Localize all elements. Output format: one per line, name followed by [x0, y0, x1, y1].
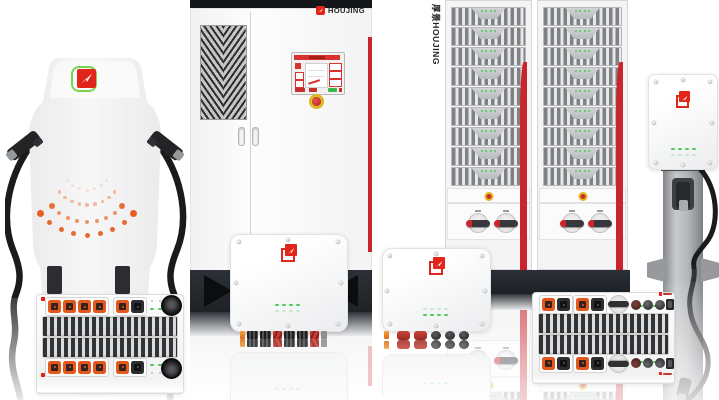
red-terminal: [310, 331, 319, 339]
indicator-dot: [78, 187, 81, 190]
status-led: [430, 314, 434, 317]
wall-box-status-leds: [423, 303, 451, 321]
tower-red-stripe: [616, 62, 623, 270]
tower-estop-panel: [447, 188, 530, 203]
rack-power-module: [451, 27, 526, 46]
status-led: [692, 154, 696, 157]
module-rotary-knob: [609, 354, 628, 373]
round-connector-black: [643, 358, 653, 368]
logo-arrow-icon: [316, 6, 325, 15]
screw-icon: [336, 240, 340, 244]
screw-icon: [237, 322, 241, 326]
screw-icon: [234, 281, 238, 285]
screw-icon: [385, 289, 389, 293]
product-showcase: HOUJING: [0, 0, 719, 400]
screw-icon: [237, 240, 241, 244]
indicator-dot: [85, 220, 89, 224]
status-led: [48, 361, 61, 374]
display-button-green: [328, 88, 337, 92]
indicator-dot: [78, 202, 82, 206]
orange-terminal: [384, 341, 389, 349]
charger-status-leds-dim: [671, 143, 699, 161]
indicator-dot: [71, 184, 74, 187]
orange-terminal: [240, 340, 245, 348]
emergency-stop-button: [309, 94, 324, 109]
screw-icon: [388, 322, 392, 326]
rack-power-module: [543, 67, 622, 86]
module-dc-connectors: [45, 358, 109, 377]
charging-gun-tip: [679, 200, 688, 211]
cabinet-door-handle-right: [252, 127, 259, 146]
display-menu-box: [295, 80, 304, 88]
wall-mounted-charger-box: [230, 234, 346, 400]
pillar-brand-logo: [71, 62, 103, 96]
orange-connector: [576, 298, 589, 311]
display-menu-box: [295, 72, 304, 80]
status-led: [685, 154, 689, 157]
module-vent-grille: [42, 337, 178, 358]
tower-red-stripe: [520, 62, 527, 270]
rack-power-module: [451, 87, 526, 106]
module-dc-connectors: [45, 297, 109, 316]
dark-terminal: [247, 331, 258, 339]
black-round-connector: [431, 341, 441, 350]
status-led: [289, 310, 293, 313]
indicator-dot: [107, 196, 111, 200]
wall-mounted-charger-box: [382, 248, 489, 400]
rack-module-leds: [472, 28, 506, 32]
display-button-red: [295, 88, 305, 92]
indicator-dot: [58, 190, 62, 194]
wall-box-connector-strip: [384, 330, 487, 340]
status-led: [150, 299, 154, 311]
module-io-connectors: [573, 295, 607, 314]
rack-module-leds: [472, 168, 506, 172]
orange-connector: [542, 298, 555, 311]
power-module-face: [533, 334, 674, 375]
orange-connector-set: [48, 300, 106, 313]
display-button-red: [339, 88, 342, 92]
orange-connector: [542, 357, 555, 370]
power-module-reflection: [37, 337, 183, 379]
tower-estop-panel: [539, 188, 626, 203]
rack-power-module: [451, 147, 526, 166]
status-led: [671, 154, 675, 157]
rack-module-leds: [566, 108, 600, 112]
wall-box-connector-strip: [384, 340, 487, 350]
wall-box-reflection: [382, 354, 491, 400]
indicator-dot: [71, 231, 76, 236]
black-round-connector: [459, 341, 469, 350]
cabinet-display: [291, 52, 345, 95]
logo-red-square-icon: [77, 69, 96, 88]
rack-power-module: [543, 87, 622, 106]
rack-power-module: [543, 127, 622, 146]
rack-power-module: [451, 67, 526, 86]
logo-arrow-icon: [679, 93, 690, 104]
red-round-connector: [397, 331, 410, 340]
rack-module-leds: [566, 128, 600, 132]
rack-power-module: [543, 7, 622, 26]
power-module-face: [533, 293, 674, 334]
black-connector: [591, 298, 604, 311]
wall-box-connector-strip: [240, 330, 336, 339]
indicator-dot: [37, 210, 44, 217]
wall-box-logo: [281, 244, 298, 261]
module-vent-grille: [538, 334, 669, 355]
black-round-connector: [445, 341, 455, 350]
display-side-box: [329, 63, 342, 71]
indicator-dot: [63, 196, 67, 200]
red-terminal: [273, 331, 282, 339]
dark-terminal: [284, 340, 295, 348]
status-led: [93, 300, 106, 313]
charger-cable: [694, 170, 716, 267]
rack-power-module: [543, 27, 622, 46]
module-io-connectors: [573, 354, 607, 373]
rack-power-module: [451, 127, 526, 146]
screw-icon: [708, 80, 712, 84]
cabinet-door-handle-left: [238, 127, 245, 146]
display-side-box: [329, 79, 342, 87]
rack-power-module: [451, 7, 526, 26]
module-rotary-knob: [609, 295, 628, 314]
rack-module-leds: [566, 48, 600, 52]
screw-icon: [336, 322, 340, 326]
indicator-dot: [86, 189, 89, 192]
round-connector-black: [655, 358, 665, 368]
rack-power-module: [543, 167, 622, 186]
indicator-dot: [59, 227, 64, 232]
connector-strip-reflection: [240, 339, 336, 348]
wall-box-body: [230, 234, 348, 332]
rack-vertical-brand-label: 厚景HOUJING: [430, 4, 442, 65]
indicator-dot: [85, 233, 90, 238]
indicator-dot: [93, 187, 96, 190]
screw-icon: [652, 121, 656, 125]
orange-terminal: [384, 331, 389, 339]
dc-breaker-switch: [496, 213, 516, 233]
rack-power-module: [451, 167, 526, 186]
cabinet-red-stripe: [368, 37, 372, 252]
logo-red-square-icon: [679, 91, 690, 102]
module-io-connectors: [113, 358, 147, 377]
round-connector-maroon: [631, 358, 641, 368]
indicator-dot: [100, 184, 103, 187]
indicator-dot: [70, 200, 74, 204]
status-led: [63, 300, 76, 313]
screw-icon: [480, 322, 484, 326]
black-connector: [131, 300, 144, 313]
status-led: [275, 310, 279, 313]
black-connector: [557, 298, 570, 311]
screw-icon: [654, 161, 658, 165]
round-connector-black: [643, 300, 653, 310]
module-tail-fade: [533, 375, 674, 382]
indicator-dot: [85, 203, 89, 207]
wall-box-status-leds-dim: [275, 299, 303, 317]
cabinet-brand: HOUJING: [316, 6, 365, 15]
screw-icon: [434, 252, 438, 256]
orange-connector: [116, 300, 129, 313]
black-connector: [131, 361, 144, 374]
indicator-dot: [119, 203, 125, 209]
status-led: [48, 300, 61, 313]
comm-port: [666, 358, 674, 369]
power-module-face: [37, 337, 183, 379]
dc-breaker-switch: [562, 213, 582, 233]
screw-icon: [339, 281, 343, 285]
logo-arrow-icon: [433, 258, 445, 270]
black-connector: [591, 357, 604, 370]
wall-box-connector-strip: [240, 339, 336, 348]
cabinet-door-seam: [250, 12, 251, 270]
indicator-dot: [75, 219, 79, 223]
black-connector: [557, 357, 570, 370]
screw-icon: [708, 161, 712, 165]
module-io-connectors: [113, 297, 147, 316]
logo-red-square-icon: [316, 6, 325, 15]
dc-breaker-switch: [468, 213, 488, 233]
screw-icon: [654, 80, 658, 84]
module-vent-grille: [42, 316, 178, 337]
status-led: [150, 363, 154, 375]
display-header-title: [309, 56, 325, 59]
indicator-dot: [122, 220, 127, 225]
indicator-dot: [98, 231, 103, 236]
rack-module-leds: [566, 8, 600, 12]
module-fan-icon: [161, 358, 182, 379]
black-round-connector: [431, 331, 441, 340]
rack-module-leds: [566, 28, 600, 32]
screw-icon: [286, 238, 290, 242]
indicator-dot: [110, 227, 115, 232]
rack-module-leds: [472, 108, 506, 112]
wall-charger-box: [648, 74, 718, 170]
rack-module-leds: [566, 68, 600, 72]
module-io-connectors: [539, 295, 573, 314]
status-led: [444, 314, 448, 317]
dark-terminal: [297, 340, 308, 348]
rack-power-module: [451, 107, 526, 126]
rack-power-module: [543, 47, 622, 66]
tower-switch-panel: [539, 203, 626, 240]
rack-module-leds: [472, 148, 506, 152]
logo-red-square-icon: [433, 257, 445, 269]
logo-arrow-icon: [77, 69, 96, 88]
indicator-dot: [113, 211, 117, 215]
orange-connector: [116, 361, 129, 374]
indicator-dot: [57, 211, 61, 215]
display-chart-area: [305, 63, 328, 88]
status-led: [282, 310, 286, 313]
status-led: [437, 314, 441, 317]
display-logo-icon: [295, 63, 301, 69]
tower-module-stack: [451, 7, 526, 188]
module-tail-fade: [37, 379, 183, 392]
black-round-connector: [445, 331, 455, 340]
tower-module-stack: [543, 7, 622, 188]
red-round-connector: [414, 341, 427, 350]
rack-power-module: [543, 147, 622, 166]
emergency-stop-button: [578, 192, 587, 201]
round-connector-maroon: [631, 300, 641, 310]
display-side-box: [329, 71, 342, 79]
status-led: [423, 314, 427, 317]
screw-icon: [681, 78, 685, 82]
connector-strip-reflection: [384, 340, 487, 350]
emergency-stop-button: [484, 192, 493, 201]
base-chevron-left: [204, 275, 232, 307]
indicator-dot: [93, 202, 97, 206]
indicator-dot: [101, 200, 105, 204]
status-led: [678, 154, 682, 157]
rack-module-leds: [566, 168, 600, 172]
indicator-dot: [113, 190, 117, 194]
status-led: [93, 361, 106, 374]
orange-connector: [576, 357, 589, 370]
indicator-dot: [47, 220, 52, 225]
red-terminal: [273, 340, 282, 348]
comm-port: [666, 299, 674, 310]
screw-icon: [286, 324, 290, 328]
dark-terminal: [247, 340, 258, 348]
brand-label: HOUJING: [328, 6, 365, 15]
screw-icon: [480, 254, 484, 258]
red-round-connector: [414, 331, 427, 340]
dark-terminal: [284, 331, 295, 339]
indicator-dot: [130, 210, 137, 217]
red-round-connector: [397, 341, 410, 350]
rectifier-power-module-left: [36, 294, 184, 394]
rack-module-leds: [472, 8, 506, 12]
status-led: [78, 300, 91, 313]
rack-module-leds: [566, 148, 600, 152]
rack-power-module: [451, 47, 526, 66]
dark-terminal: [260, 331, 271, 339]
wall-box-logo: [429, 257, 446, 274]
indicator-dot: [105, 179, 108, 182]
tower-switch-panel: [447, 203, 530, 240]
screw-icon: [710, 121, 714, 125]
indicator-dot: [66, 216, 70, 220]
screw-icon: [681, 163, 685, 167]
module-vent-grille: [538, 313, 669, 334]
screw-icon: [483, 289, 487, 293]
orange-terminal: [240, 331, 245, 339]
indicator-dot: [95, 219, 99, 223]
rectifier-power-module-right: [532, 292, 675, 384]
red-terminal: [310, 340, 319, 348]
status-led: [63, 361, 76, 374]
rack-module-leds: [472, 128, 506, 132]
rack-module-leds: [472, 48, 506, 52]
rack-power-module: [543, 107, 622, 126]
black-round-connector: [459, 331, 469, 340]
wall-box-reflection: [230, 352, 348, 400]
dark-terminal: [260, 340, 271, 348]
dc-breaker-switch: [590, 213, 610, 233]
module-io-connectors: [539, 354, 573, 373]
status-led: [296, 310, 300, 313]
screw-icon: [434, 324, 438, 328]
logo-red-square-icon: [285, 244, 297, 256]
round-connector-black: [655, 300, 665, 310]
dark-terminal: [297, 331, 308, 339]
power-module-face: [37, 295, 183, 337]
module-brand-mark: [659, 292, 673, 296]
indicator-dot: [104, 216, 108, 220]
display-button-red: [309, 88, 317, 92]
orange-connector-set: [48, 361, 106, 374]
power-module-reflection: [533, 334, 674, 375]
wall-box-body: [382, 248, 491, 332]
rack-module-leds: [472, 68, 506, 72]
gray-terminal: [321, 340, 327, 348]
indicator-dot: [49, 203, 55, 209]
screw-icon: [388, 254, 392, 258]
cabinet-vent-grille: [200, 25, 247, 120]
status-led: [78, 361, 91, 374]
module-fan-icon: [161, 295, 182, 316]
rack-module-leds: [566, 88, 600, 92]
rack-module-leds: [472, 88, 506, 92]
logo-arrow-icon: [285, 245, 297, 257]
indicator-dot: [66, 179, 69, 182]
wall-charger-logo: [676, 91, 692, 107]
gray-terminal: [321, 331, 327, 339]
